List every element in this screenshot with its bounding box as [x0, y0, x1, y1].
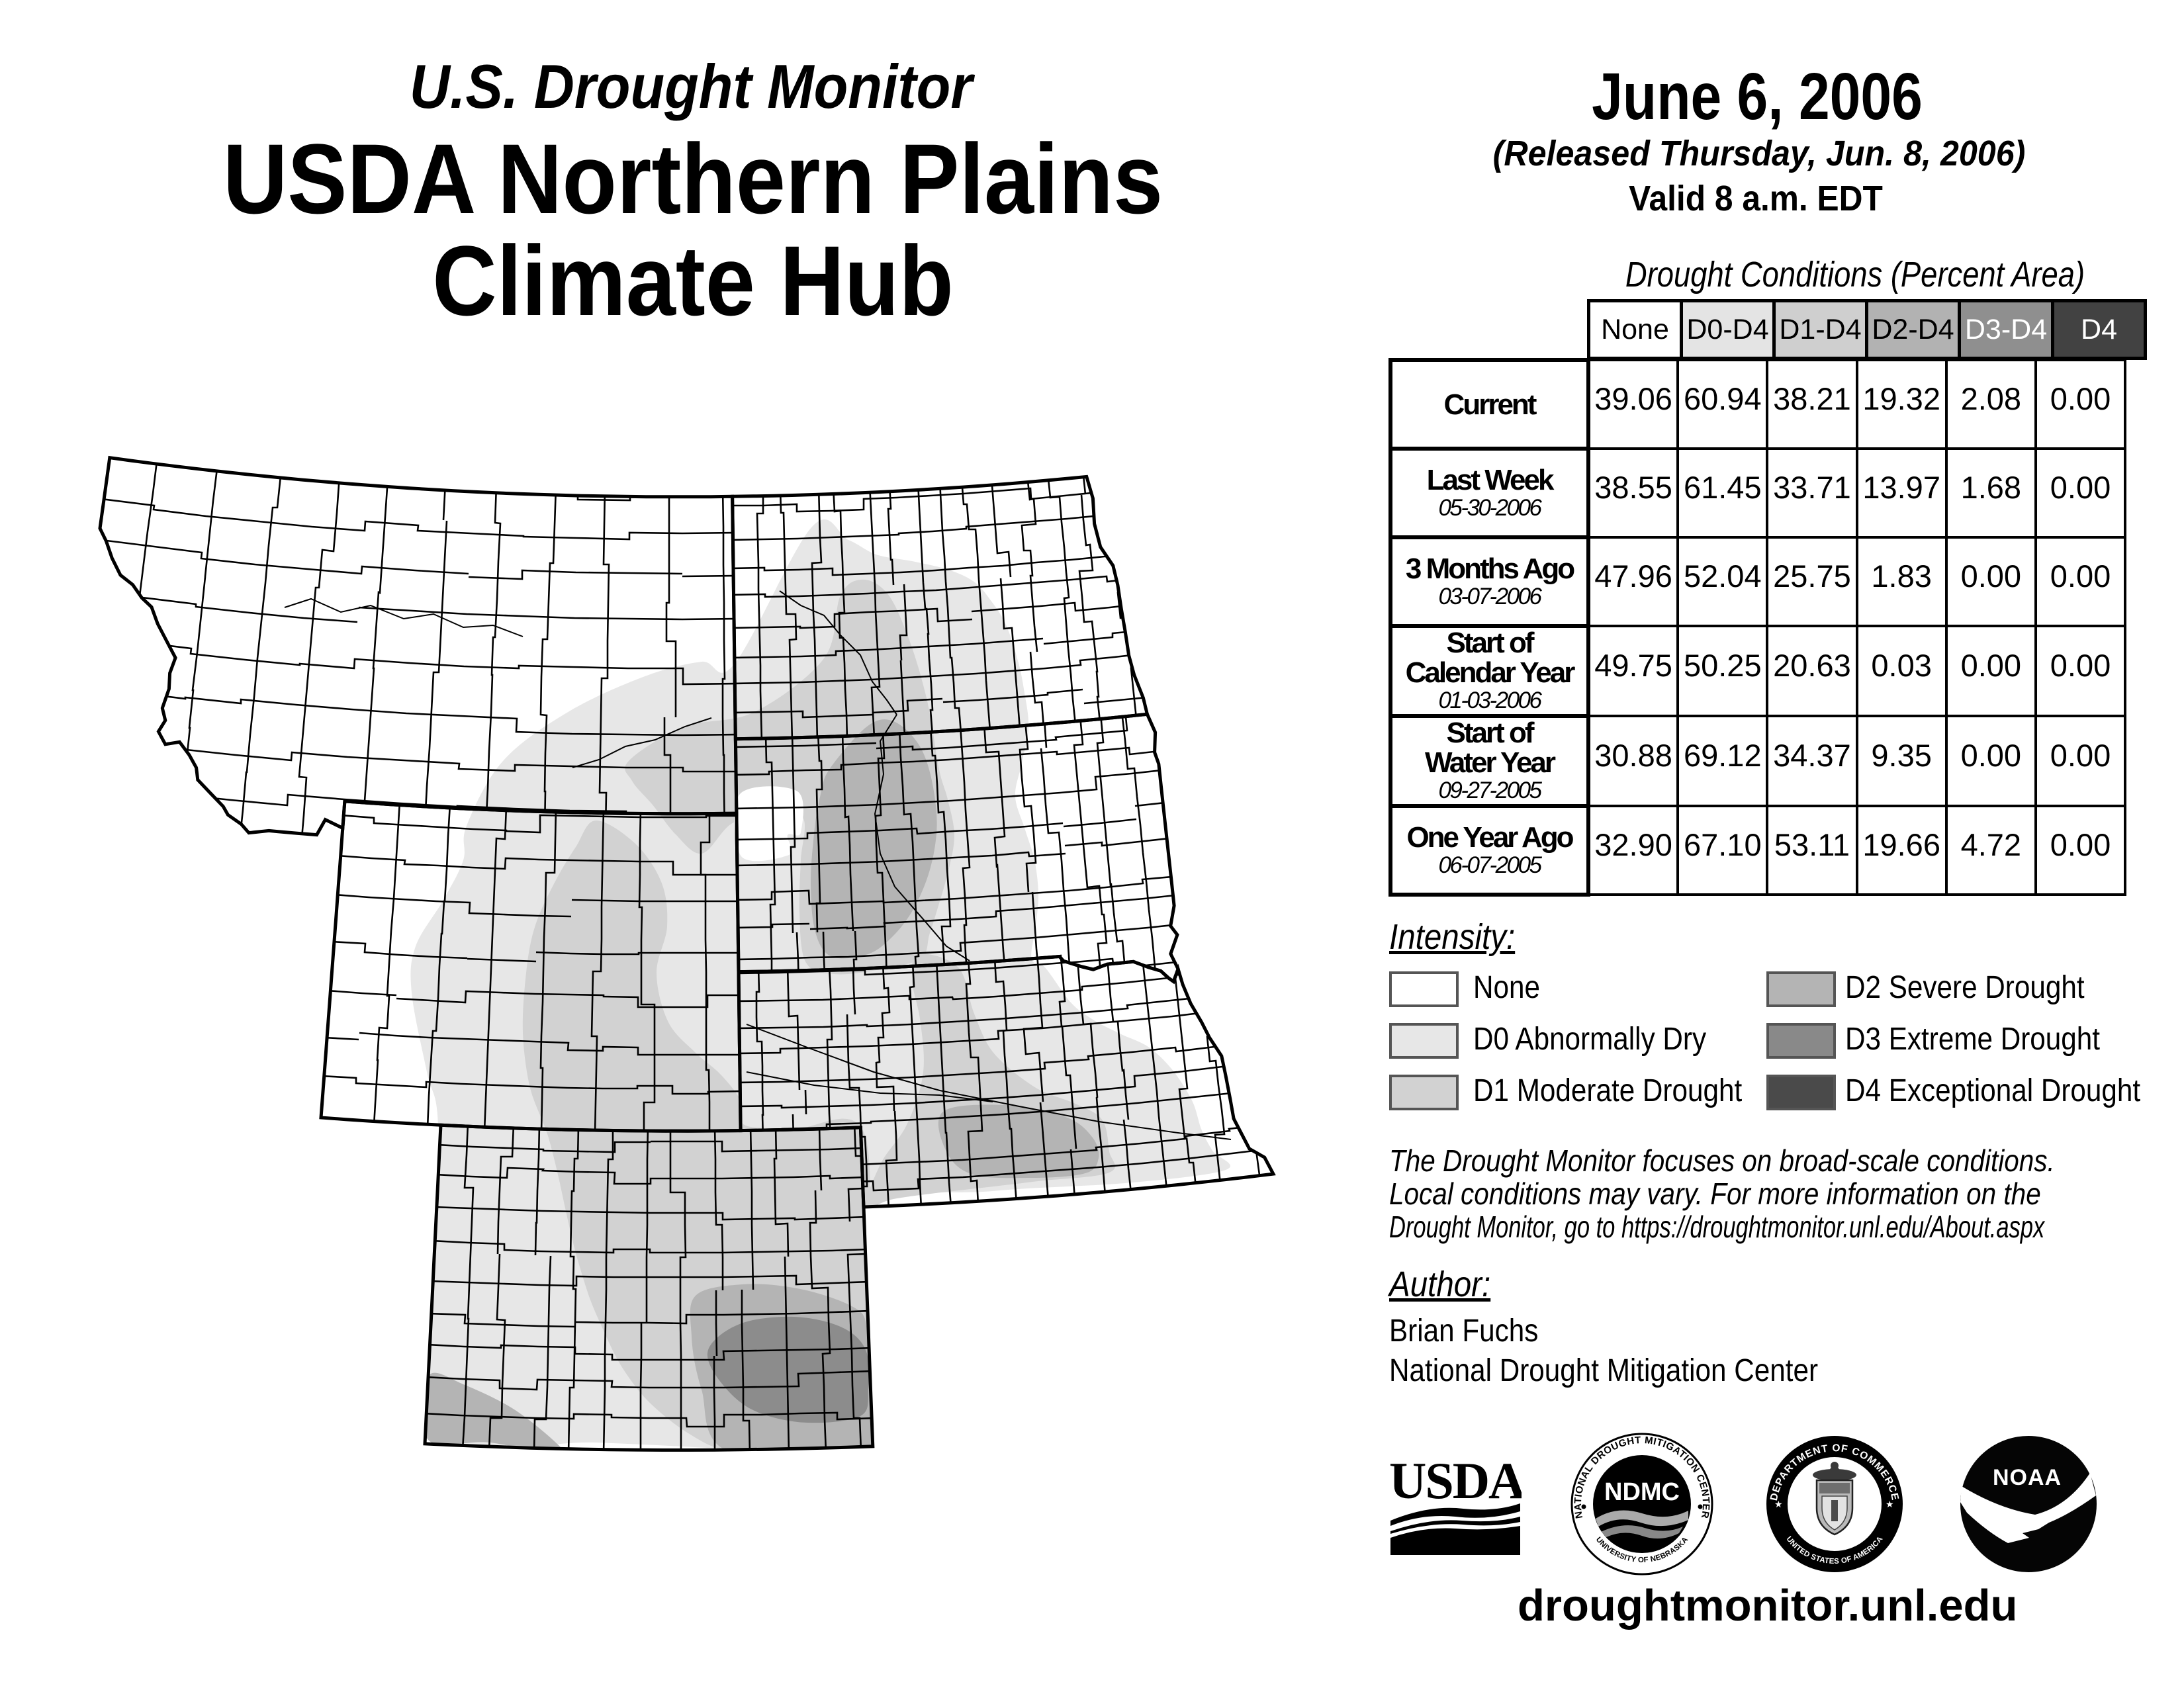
svg-text:★: ★	[1774, 1499, 1783, 1509]
svg-text:USDA: USDA	[1389, 1457, 1522, 1509]
svg-text:NOAA: NOAA	[1993, 1465, 2062, 1490]
svg-text:★: ★	[1886, 1499, 1894, 1509]
svg-text:NDMC: NDMC	[1604, 1478, 1680, 1506]
